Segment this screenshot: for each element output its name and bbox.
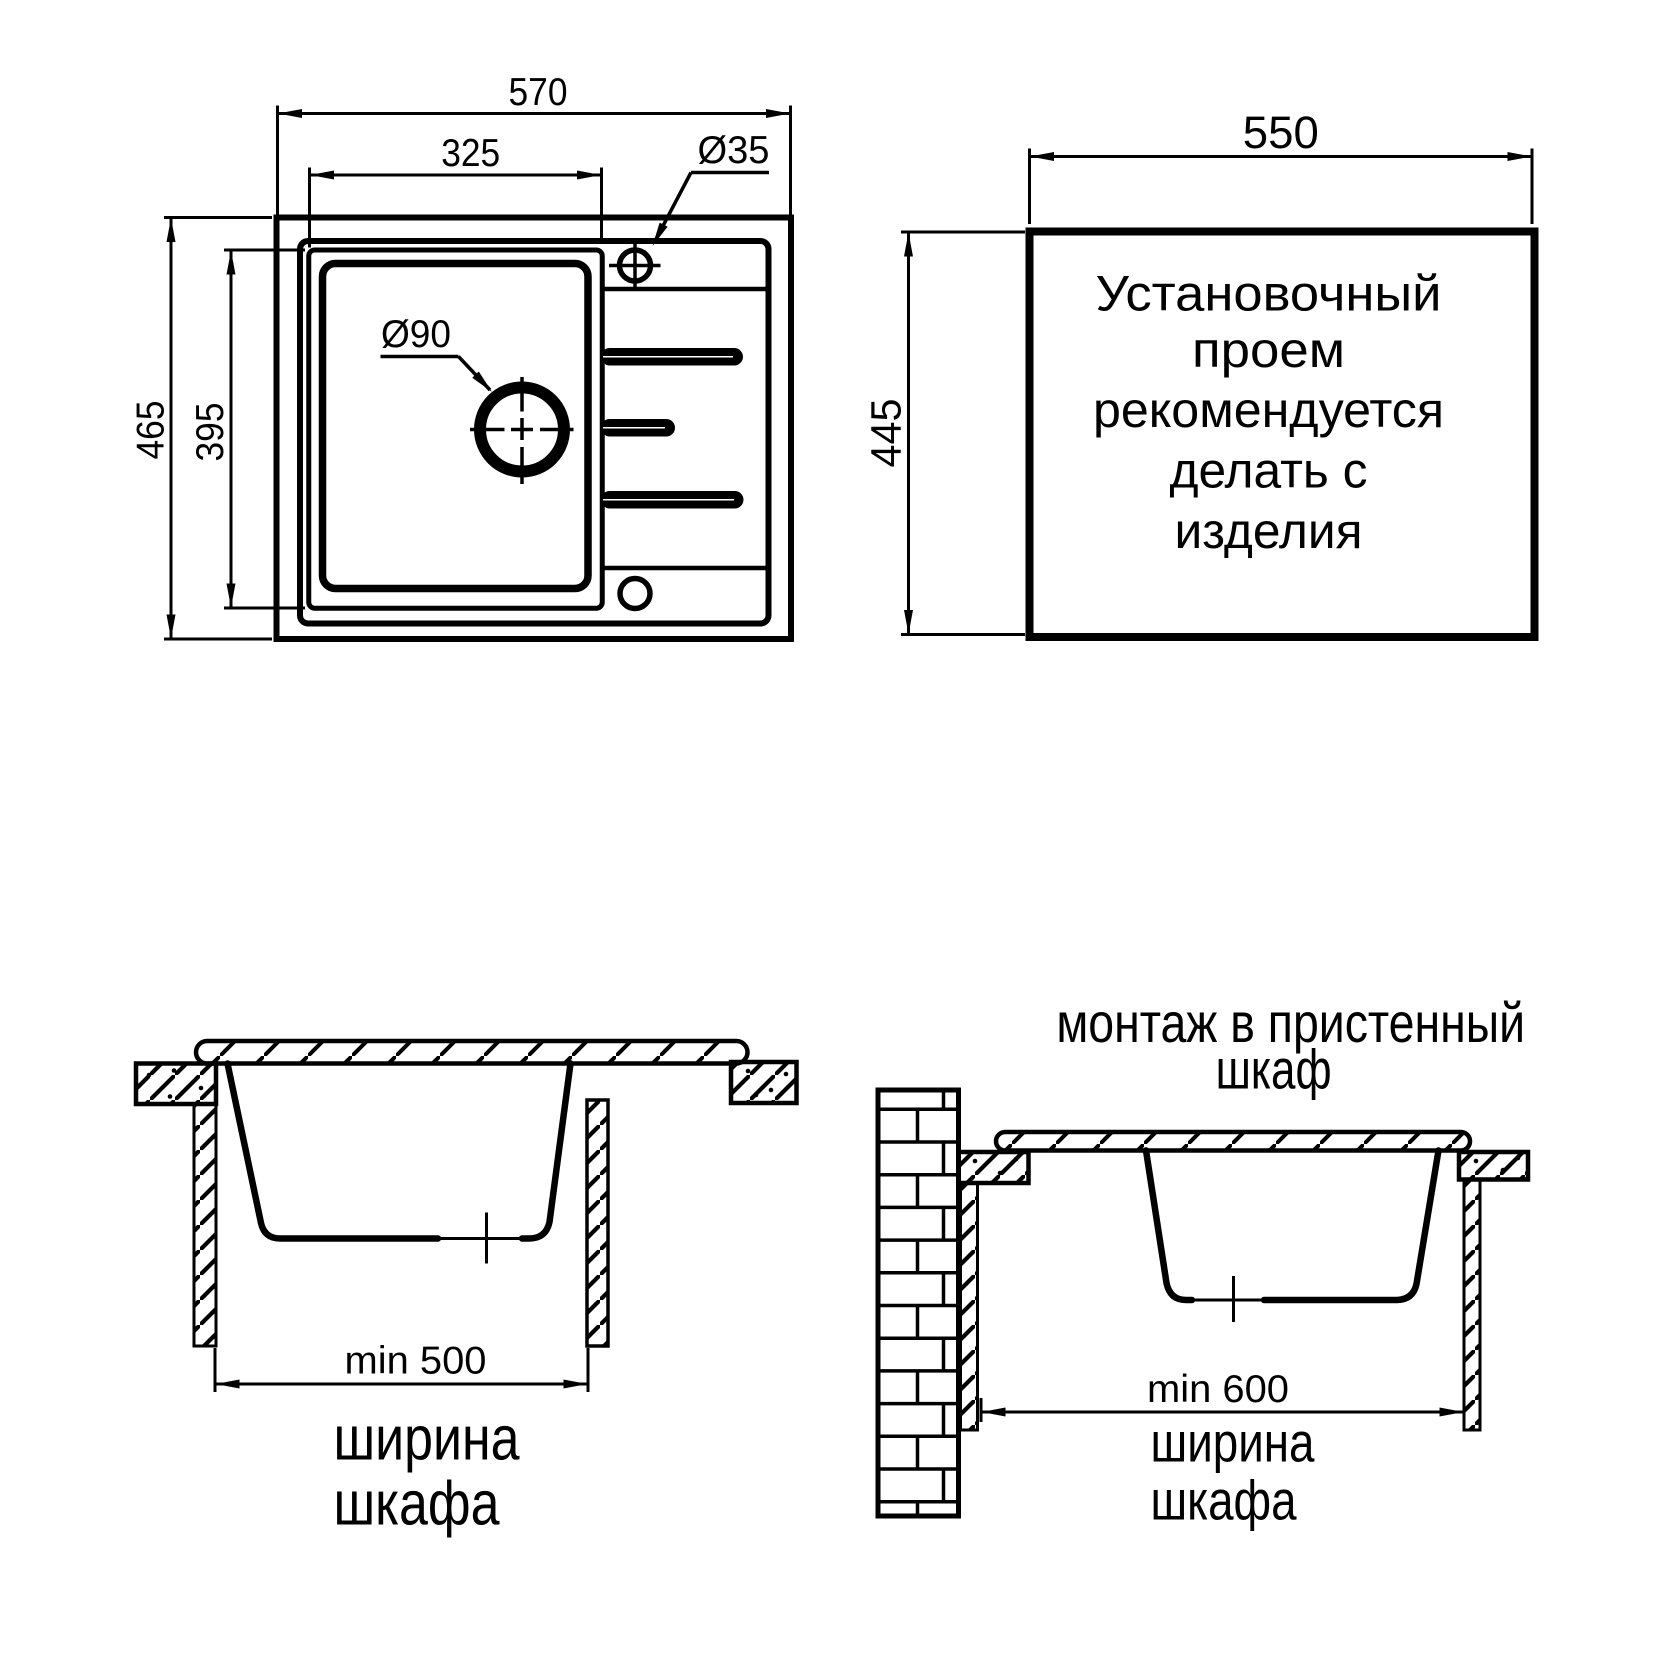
svg-text:ширина: ширина — [1151, 1411, 1316, 1474]
svg-text:шкафа: шкафа — [1151, 1469, 1298, 1532]
svg-text:изделия: изделия — [1175, 503, 1363, 559]
svg-text:325: 325 — [441, 132, 500, 175]
svg-text:Ø35: Ø35 — [698, 129, 770, 172]
svg-text:445: 445 — [863, 399, 911, 468]
svg-text:395: 395 — [189, 403, 232, 462]
svg-text:ширина: ширина — [334, 1405, 520, 1474]
svg-text:min 600: min 600 — [1147, 1368, 1289, 1411]
svg-text:рекомендуется: рекомендуется — [1093, 382, 1444, 438]
svg-text:Ø90: Ø90 — [381, 313, 451, 356]
svg-text:465: 465 — [130, 401, 173, 460]
svg-text:шкафа: шкафа — [334, 1470, 500, 1539]
svg-text:570: 570 — [509, 71, 568, 114]
svg-text:проем: проем — [1192, 322, 1345, 378]
svg-text:min 500: min 500 — [345, 1340, 487, 1383]
svg-text:шкаф: шкаф — [1216, 1038, 1332, 1101]
svg-text:550: 550 — [1243, 107, 1319, 158]
svg-text:Установочный: Установочный — [1096, 266, 1442, 322]
svg-text:делать с: делать с — [1170, 443, 1368, 499]
